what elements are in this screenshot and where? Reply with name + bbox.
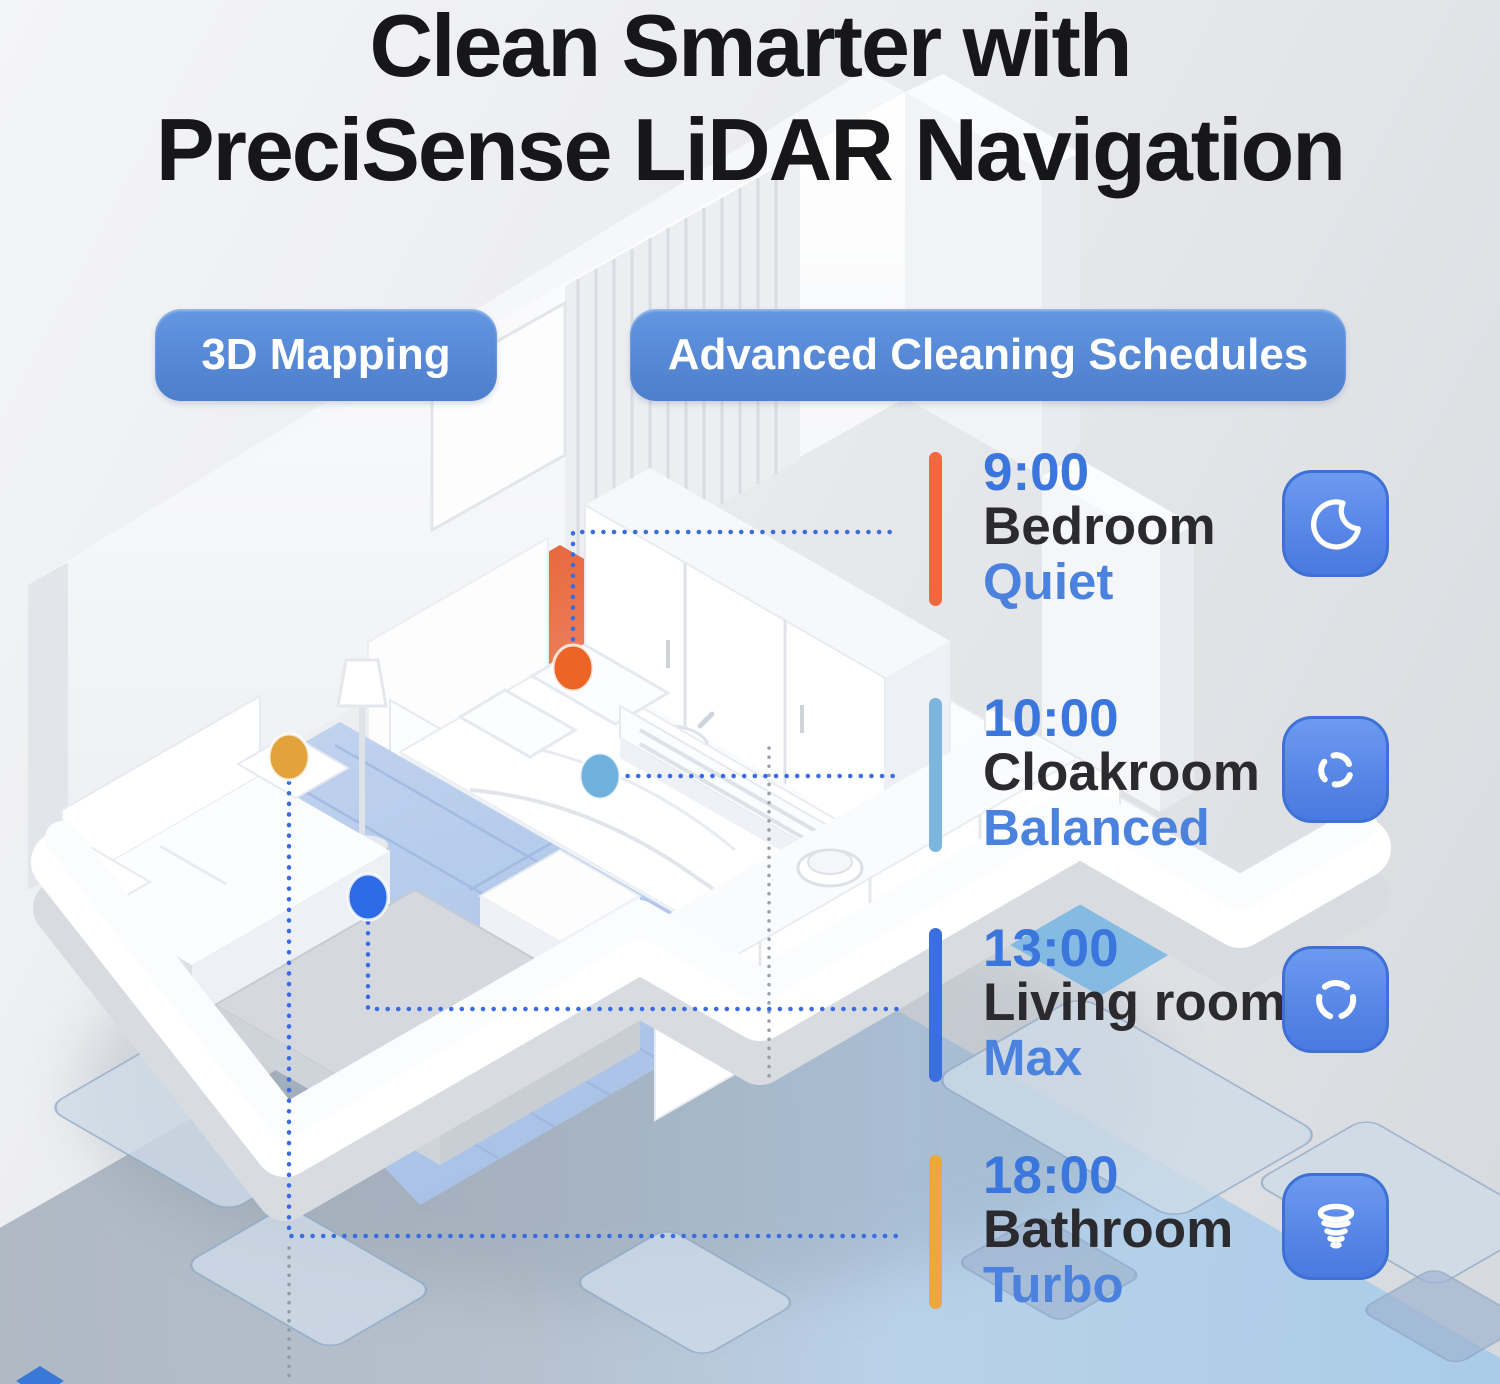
fan-icon <box>1306 740 1366 800</box>
moon-icon <box>1306 494 1366 554</box>
page: { "title": { "line1": "Clean Smarter wit… <box>0 0 1500 1384</box>
badge-3d-mapping: 3D Mapping <box>155 309 497 401</box>
entry-time: 10:00 <box>983 692 1303 746</box>
entry-room: Cloakroom <box>983 746 1303 800</box>
bedroom-marker-dot <box>553 645 593 691</box>
schedule-entry-bathroom: 18:00 Bathroom Turbo <box>929 1155 1409 1335</box>
badge-3d-mapping-label: 3D Mapping <box>201 330 450 380</box>
entry-color-bar <box>929 452 942 606</box>
entry-time: 13:00 <box>983 922 1303 976</box>
entry-time: 9:00 <box>983 446 1303 500</box>
entry-color-bar <box>929 698 942 852</box>
page-title: Clean Smarter with PreciSense LiDAR Navi… <box>0 0 1500 202</box>
entry-room: Bathroom <box>983 1203 1303 1257</box>
living-room-marker-dot <box>348 874 388 920</box>
quiet-mode-tile <box>1282 470 1389 577</box>
bathroom-marker-dot <box>269 734 309 780</box>
balanced-mode-tile <box>1282 716 1389 823</box>
entry-room: Bedroom <box>983 500 1303 554</box>
entry-time: 18:00 <box>983 1149 1303 1203</box>
max-mode-tile <box>1282 946 1389 1053</box>
entry-color-bar <box>929 1155 942 1309</box>
cloakroom-marker-dot <box>580 753 620 799</box>
entry-mode: Max <box>983 1030 1303 1086</box>
entry-mode: Turbo <box>983 1257 1303 1313</box>
entry-mode: Quiet <box>983 554 1303 610</box>
title-line-1: Clean Smarter with <box>0 0 1500 98</box>
title-line-2: PreciSense LiDAR Navigation <box>0 98 1500 202</box>
entry-mode: Balanced <box>983 800 1303 856</box>
cyclone-icon <box>1306 970 1366 1030</box>
schedule-entry-cloakroom: 10:00 Cloakroom Balanced <box>929 698 1409 878</box>
tornado-icon <box>1306 1197 1366 1257</box>
schedule-entry-bedroom: 9:00 Bedroom Quiet <box>929 452 1409 632</box>
badge-cleaning-schedules: Advanced Cleaning Schedules <box>630 309 1346 401</box>
entry-room: Living room <box>983 976 1303 1030</box>
badge-cleaning-schedules-label: Advanced Cleaning Schedules <box>668 330 1309 380</box>
entry-color-bar <box>929 928 942 1082</box>
schedule-entry-living-room: 13:00 Living room Max <box>929 928 1409 1108</box>
turbo-mode-tile <box>1282 1173 1389 1280</box>
